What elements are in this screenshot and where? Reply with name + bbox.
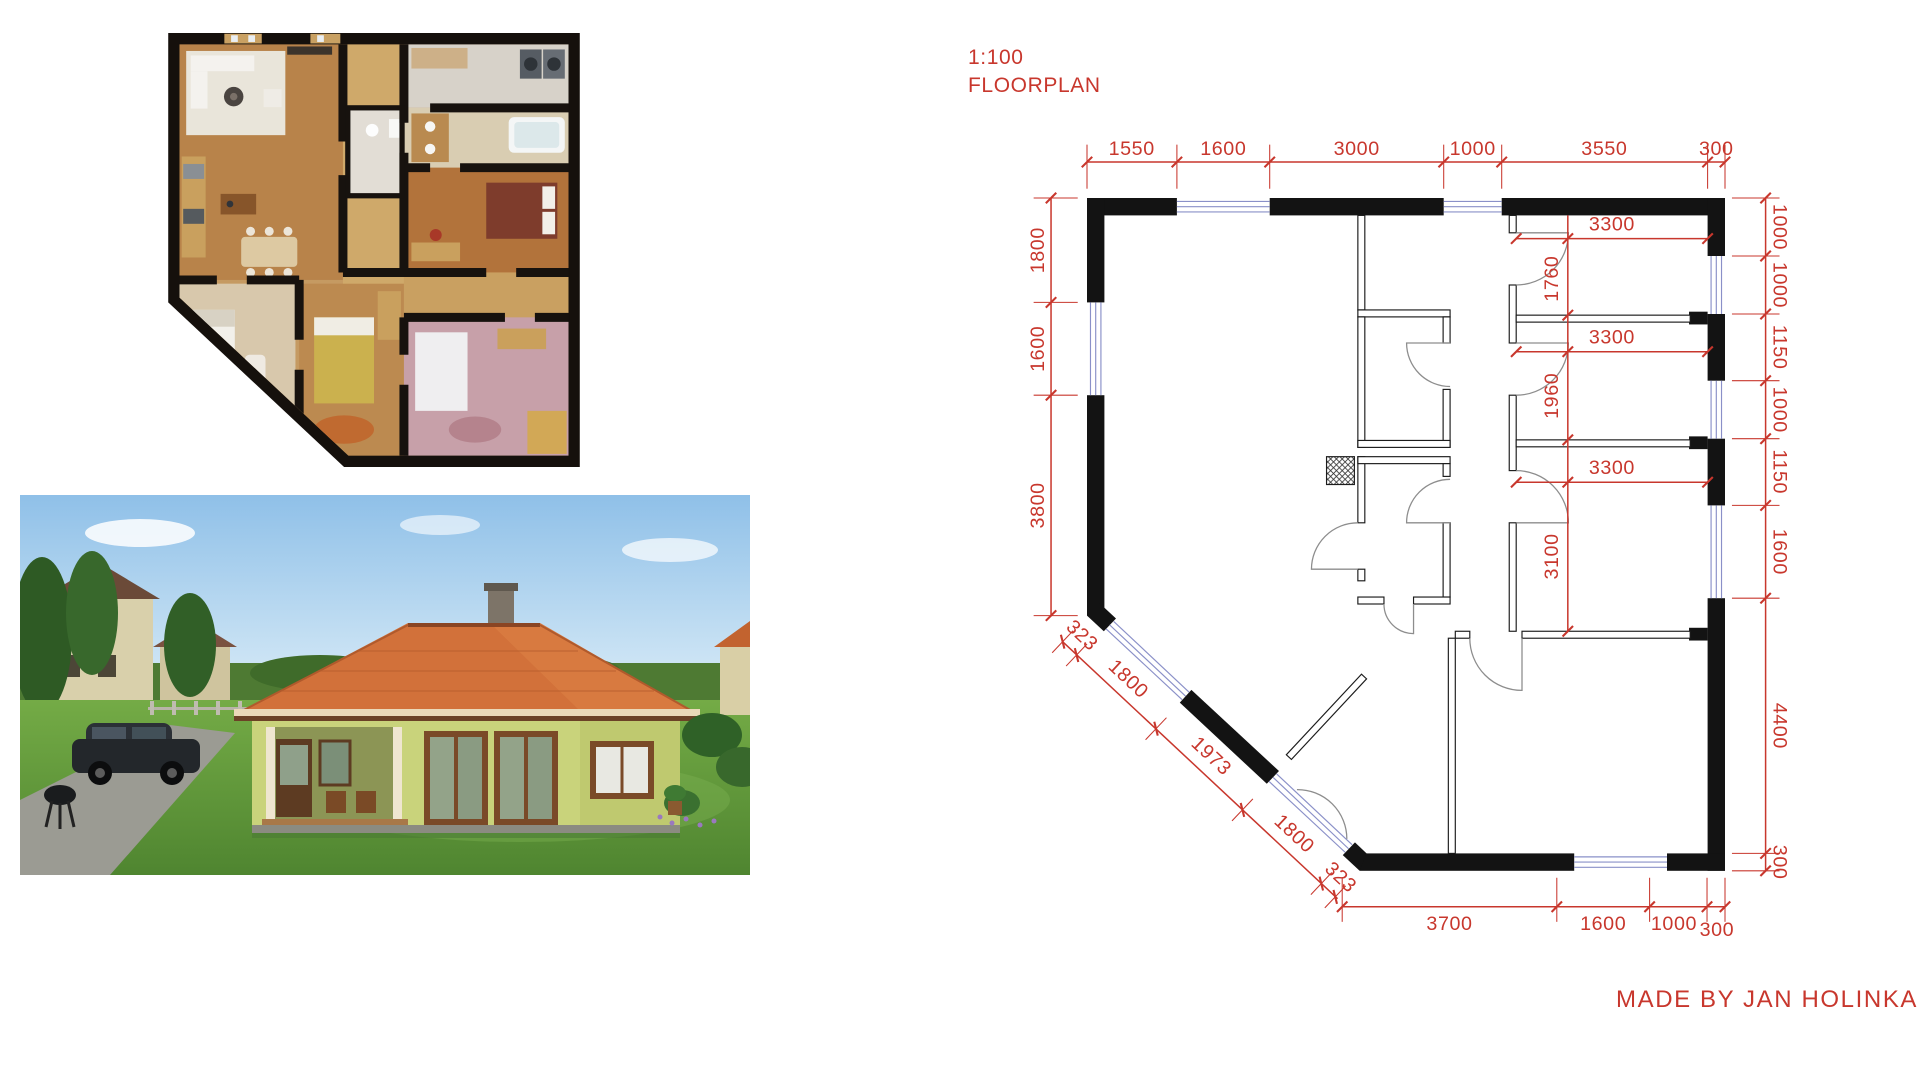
chimney-hatch [1327, 457, 1355, 485]
porch-post [393, 727, 402, 819]
dim-label: 3300 [1589, 213, 1635, 235]
dim-label: 1600 [1769, 529, 1791, 575]
dimension-interior: 3300 3300 3300 1760 1960 3100 [1511, 213, 1713, 636]
eave [234, 709, 700, 716]
dim-label: 1600 [1580, 913, 1626, 935]
dim-label: 1800 [1270, 810, 1319, 858]
dim-label: 1760 [1541, 256, 1563, 302]
dim-label: 300 [1769, 845, 1791, 880]
porch-chair [356, 791, 376, 813]
french-door-glass [528, 737, 552, 819]
window-right-3 [1711, 505, 1721, 598]
chimney [488, 587, 514, 629]
porch-chair [326, 791, 346, 813]
exterior-render [20, 495, 750, 875]
french-door-glass [500, 737, 524, 819]
window-right-1 [1711, 256, 1721, 314]
window-top-2 [1444, 201, 1502, 211]
cloud [400, 515, 480, 535]
render-rooms [179, 44, 568, 467]
porch-window [320, 741, 350, 785]
doors [1297, 233, 1568, 839]
dim-label: 3100 [1541, 533, 1563, 579]
presentation-page: 1:100 FLOORPLAN [0, 0, 1920, 1080]
dim-label: 1150 [1769, 449, 1791, 494]
window-right-2 [1711, 381, 1721, 439]
dimension-chain-top: 1550 1600 3000 1000 3550 300 [1082, 138, 1734, 189]
house-shadow [252, 833, 680, 838]
cloud [85, 519, 195, 547]
french-door-glass [458, 737, 482, 819]
dim-label: 1600 [1027, 326, 1049, 372]
dim-label: 1960 [1541, 373, 1563, 419]
porch-post [266, 727, 275, 819]
dim-label: 1000 [1769, 262, 1791, 308]
dim-label: 1800 [1027, 227, 1049, 273]
interior-walls [1286, 215, 1690, 853]
dimension-chain-right: 1000 1000 1150 1000 1150 1600 4400 300 [1732, 193, 1791, 880]
fascia [234, 716, 700, 721]
dim-label: 1550 [1109, 138, 1155, 160]
dim-label: 1000 [1769, 387, 1791, 433]
dimension-chain-bottom: 3700 1600 1000 300 [1337, 878, 1734, 941]
dim-label: 1000 [1651, 913, 1697, 935]
foundation [252, 825, 680, 833]
dim-label: 3800 [1027, 482, 1049, 528]
french-door-glass [430, 737, 454, 819]
dim-label: 300 [1700, 919, 1735, 941]
cloud [622, 538, 718, 562]
dim-label: 300 [1699, 138, 1734, 160]
technical-floorplan: 1550 1600 3000 1000 3550 300 1800 1600 3… [830, 20, 1890, 1076]
dim-label: 4400 [1769, 703, 1791, 749]
dimension-chain-diagonal: 323 1800 1973 1800 323 [1052, 616, 1360, 908]
dim-label: 1800 [1104, 655, 1153, 703]
dim-label: 1000 [1769, 204, 1791, 250]
dim-label: 1000 [1450, 138, 1496, 160]
chimney-cap [484, 583, 518, 591]
dimension-chain-left: 1800 1600 3800 [1027, 193, 1078, 621]
dim-label: 1600 [1200, 138, 1246, 160]
dim-label: 3300 [1589, 457, 1635, 479]
dim-label: 1150 [1769, 325, 1791, 370]
window-bottom [1574, 857, 1667, 867]
floorplan-3d-render [168, 33, 580, 467]
window-top-1 [1177, 201, 1270, 211]
credit-text: MADE BY JAN HOLINKA [1616, 986, 1918, 1014]
dim-label: 3300 [1589, 327, 1635, 349]
exterior-walls [1087, 198, 1725, 871]
window-left [1090, 302, 1100, 395]
dim-label: 3700 [1426, 913, 1472, 935]
dim-label: 3000 [1334, 138, 1380, 160]
dim-label: 3550 [1581, 138, 1627, 160]
porch-door-glass [280, 745, 308, 785]
